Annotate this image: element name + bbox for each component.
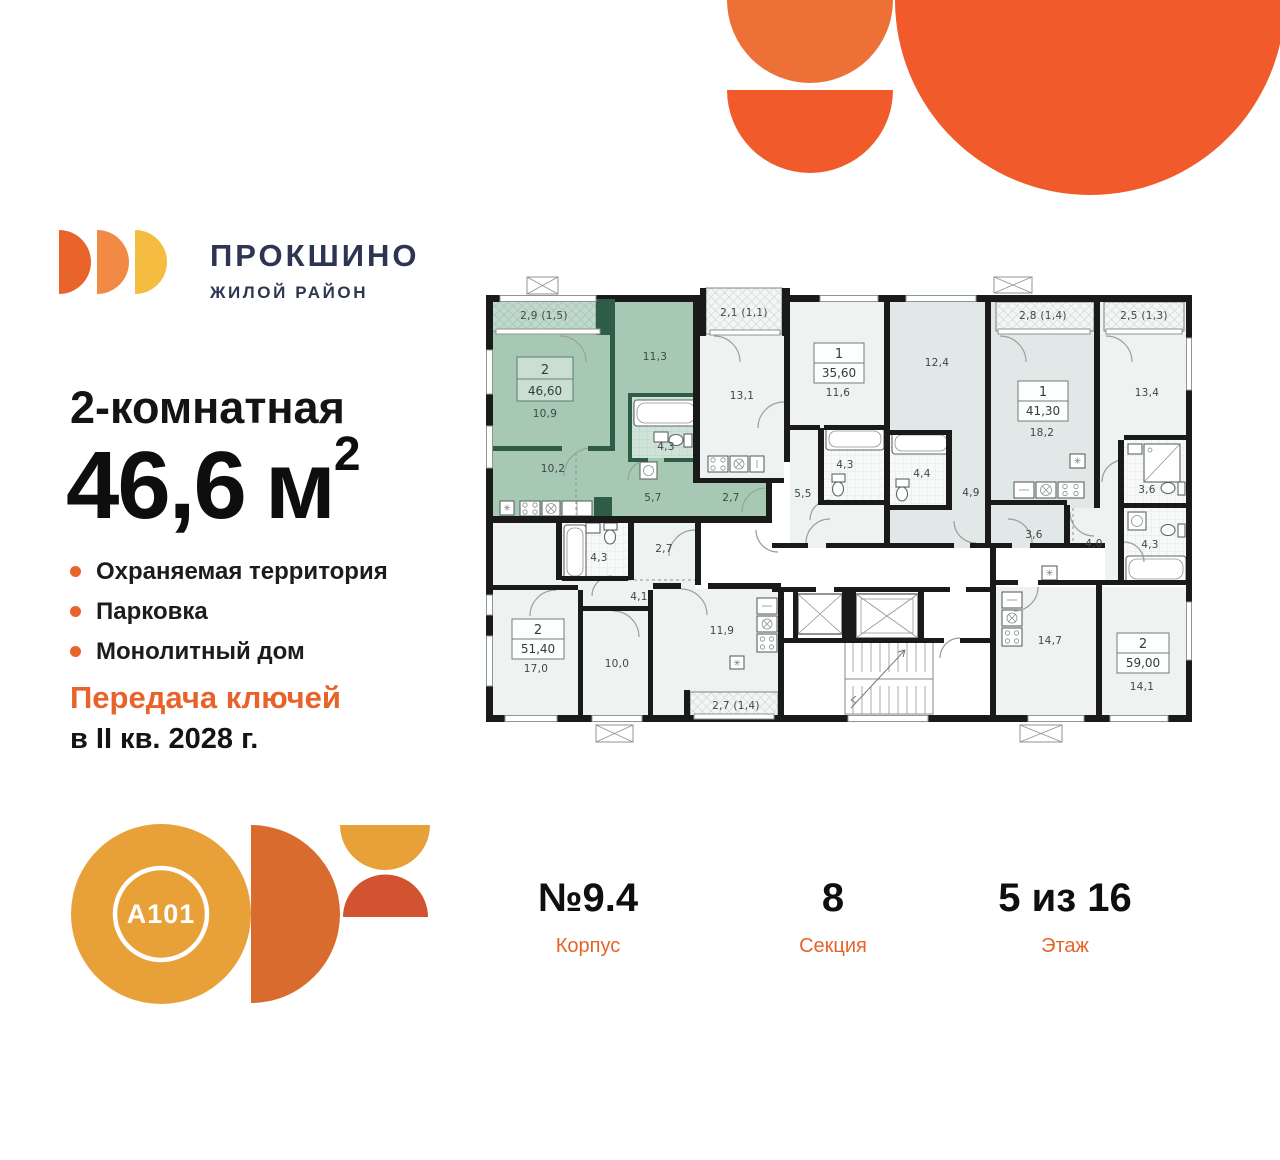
feature-item: Монолитный дом: [70, 632, 388, 672]
a101-logo-text: A101: [127, 899, 196, 929]
stat-floor: 5 из 16 Этаж: [955, 876, 1175, 958]
washing-machine-icon: [640, 462, 657, 479]
kitchen-icon: [708, 456, 764, 472]
stat-section: 8 Секция: [723, 876, 943, 958]
room-area-label: 10,9: [533, 408, 558, 420]
apartment-total-area: 51,40: [521, 642, 555, 656]
apartment-rooms-count: 1: [1039, 385, 1047, 400]
keys-handover-line1: Передача ключей: [70, 680, 341, 716]
room-area-label: 11,3: [643, 351, 668, 363]
area-superscript: 2: [334, 428, 361, 481]
room-area-label: 5,5: [794, 488, 812, 500]
ac-box-icon: [596, 725, 633, 742]
elevator-shaft-icon: [798, 594, 842, 634]
stat-building: №9.4 Корпус: [478, 876, 698, 958]
building-label: Корпус: [478, 935, 698, 958]
svg-text:✳: ✳: [503, 504, 511, 514]
room-area-label: 13,1: [730, 390, 755, 402]
feature-list: Охраняемая территория Парковка Монолитны…: [70, 552, 388, 672]
decoration-semicircle-small-top: [727, 0, 893, 83]
floor-plan: ✳ ✳: [482, 270, 1198, 748]
room-area-label: 2,9 (1,5): [520, 310, 568, 322]
shower-icon: [1144, 444, 1180, 482]
bullet-dot-icon: [70, 606, 81, 617]
room-area-label: 4,9: [962, 487, 980, 499]
ac-box-icon: [527, 277, 558, 294]
elevator-shaft-icon: [856, 594, 918, 638]
a101-halfcircle: [251, 825, 340, 1003]
svg-text:✳: ✳: [733, 659, 741, 669]
room-area-label: 10,0: [605, 658, 630, 670]
floor-label: Этаж: [955, 935, 1175, 958]
apartment-area: 46,6м2: [66, 436, 361, 537]
apartment-rooms-count: 2: [541, 363, 549, 378]
bathtub-icon: [892, 432, 950, 454]
brand-logo-icon: [57, 229, 172, 297]
room-area-label: 2,7: [722, 492, 740, 504]
bullet-dot-icon: [70, 566, 81, 577]
apartment-total-area: 35,60: [822, 366, 856, 380]
apartment-rooms-count: 1: [835, 347, 843, 362]
building-number: №9.4: [478, 876, 698, 921]
bullet-dot-icon: [70, 646, 81, 657]
bathtub-icon: [826, 428, 884, 450]
keys-handover-line2: в II кв. 2028 г.: [70, 723, 258, 756]
decoration-semicircle-small-bottom: [727, 90, 893, 173]
apartment-info-box: 259,00: [1117, 633, 1169, 673]
room-area-label: 2,1 (1,1): [720, 307, 768, 319]
feature-item: Парковка: [70, 592, 388, 632]
bathtub-icon: [634, 400, 698, 426]
apartment-info-box: 246,60: [517, 357, 573, 401]
room-area-label: 11,9: [710, 625, 735, 637]
room-area-label: 10,2: [541, 463, 566, 475]
sink-icon: [1128, 444, 1142, 454]
area-value: 46,6: [66, 432, 245, 539]
apartment-info-box: 135,60: [814, 343, 864, 383]
room-area-label: 3,6: [1025, 529, 1043, 541]
apartment-rooms-count: 2: [1139, 637, 1147, 652]
room-area-label: 2,8 (1,4): [1019, 310, 1067, 322]
floor-number: 5 из 16: [955, 876, 1175, 921]
top-right-decoration: [700, 0, 1280, 220]
sink-icon: [586, 523, 600, 533]
room-area-label: 4,3: [1141, 539, 1159, 551]
brand-name: ПРОКШИНО: [210, 238, 420, 274]
room-area-label: 2,5 (1,3): [1120, 310, 1168, 322]
section-label: Секция: [723, 935, 943, 958]
bathtub-icon: [564, 525, 586, 579]
apartment-total-area: 41,30: [1026, 404, 1060, 418]
svg-text:✳: ✳: [1046, 569, 1054, 579]
toilet-icon: [604, 523, 617, 544]
feature-item: Охраняемая территория: [70, 552, 388, 592]
room-area-label: 4,3: [836, 459, 854, 471]
section-number: 8: [723, 876, 943, 921]
brand-text-block: ПРОКШИНО ЖИЛОЙ РАЙОН: [210, 238, 420, 303]
room-area-label: 4,0: [1085, 538, 1103, 550]
ac-box-icon: [1020, 725, 1062, 742]
toilet-icon: [832, 474, 845, 496]
apartment-total-area: 46,60: [528, 384, 562, 398]
staircase-icon: [845, 642, 933, 714]
area-unit: м: [265, 432, 334, 539]
apartment-info-box: 251,40: [512, 619, 564, 659]
room-area-label: 11,6: [826, 387, 851, 399]
brand-tagline: ЖИЛОЙ РАЙОН: [210, 283, 420, 303]
room-area-label: 18,2: [1030, 427, 1055, 439]
bathtub-icon: [1126, 556, 1186, 582]
a101-bowl: [340, 825, 430, 870]
svg-text:✳: ✳: [1074, 457, 1082, 467]
apartment-type-title: 2-комнатная: [70, 385, 345, 430]
room-area-label: 12,4: [925, 357, 950, 369]
room-area-label: 4,4: [913, 468, 931, 480]
room-area-label: 14,1: [1130, 681, 1155, 693]
room-area-label: 13,4: [1135, 387, 1160, 399]
kitchen-icon: ✳: [500, 501, 592, 516]
toilet-icon: [896, 479, 909, 501]
room-area-label: 5,7: [644, 492, 662, 504]
room-area-label: 4,1: [630, 591, 648, 603]
room-area-label: 3,6: [1138, 484, 1156, 496]
decoration-semicircle-large: [895, 0, 1280, 195]
a101-dome: [343, 875, 428, 917]
room-area-label: 4,3: [657, 441, 675, 453]
apartment-info-box: 141,30: [1018, 381, 1068, 421]
room-area-label: 14,7: [1038, 635, 1063, 647]
room-area-label: 2,7 (1,4): [712, 700, 760, 712]
flyer-canvas: ПРОКШИНО ЖИЛОЙ РАЙОН 2-комнатная 46,6м2 …: [0, 0, 1280, 1160]
ac-box-icon: [994, 277, 1032, 293]
room-area-label: 2,7: [655, 543, 673, 555]
apartment-total-area: 59,00: [1126, 656, 1160, 670]
developer-logo-a101: A101: [58, 816, 438, 1016]
washing-machine-icon: [1128, 512, 1146, 530]
room-area-label: 17,0: [524, 663, 549, 675]
room-area-label: 4,3: [590, 552, 608, 564]
apartment-rooms-count: 2: [534, 623, 542, 638]
